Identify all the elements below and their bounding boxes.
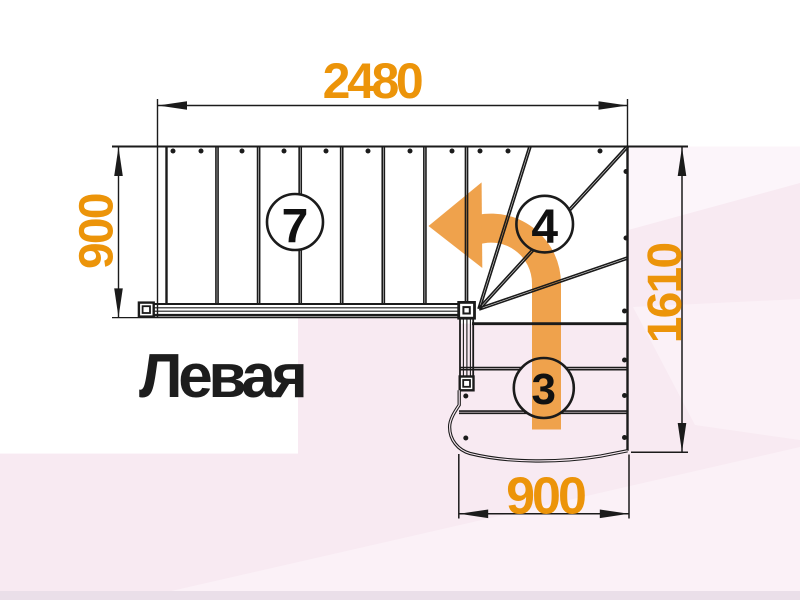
svg-text:900: 900 [71,194,124,269]
svg-text:Левая: Левая [139,342,304,411]
svg-text:900: 900 [506,468,585,526]
svg-text:1610: 1610 [639,244,692,344]
svg-text:4: 4 [531,201,558,254]
svg-text:2480: 2480 [323,53,422,109]
svg-text:7: 7 [282,201,309,254]
svg-text:3: 3 [532,365,556,414]
